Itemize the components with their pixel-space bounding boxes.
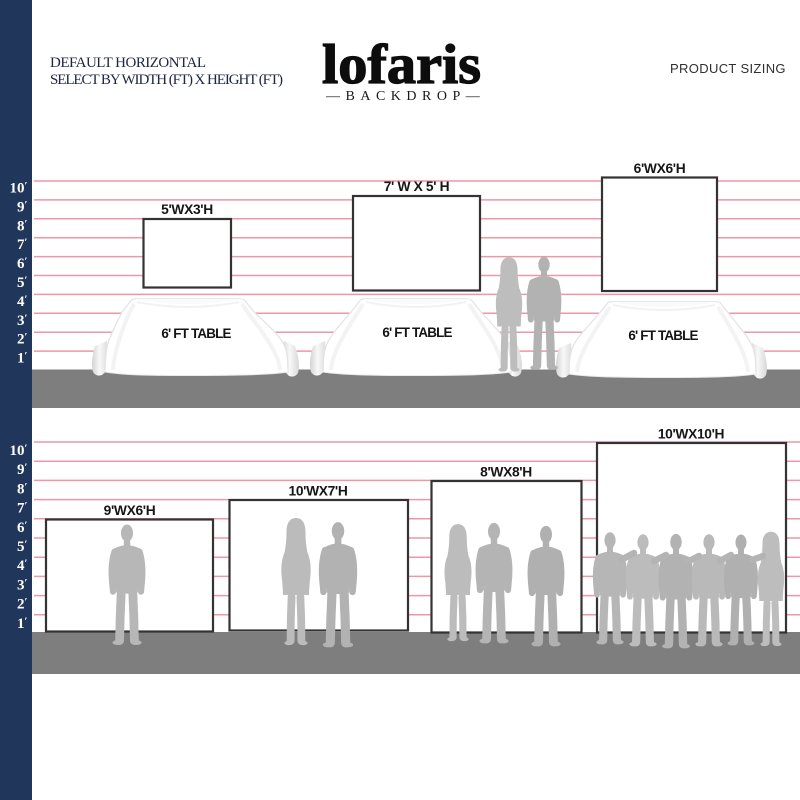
- svg-text:—BACKDROP—: —BACKDROP—: [325, 89, 485, 104]
- svg-text:9'WX6'H: 9'WX6'H: [104, 503, 156, 518]
- svg-text:PRODUCT SIZING: PRODUCT SIZING: [670, 61, 786, 76]
- svg-text:5'WX3'H: 5'WX3'H: [161, 202, 213, 217]
- svg-text:DEFAULT HORIZONTAL: DEFAULT HORIZONTAL: [50, 55, 206, 71]
- svg-text:10'WX10'H: 10'WX10'H: [658, 427, 725, 442]
- svg-text:6' FT TABLE: 6' FT TABLE: [382, 325, 452, 340]
- svg-text:10'WX7'H: 10'WX7'H: [289, 484, 348, 499]
- svg-text:7' W X 5' H: 7' W X 5' H: [384, 179, 450, 194]
- svg-text:SELECT BY WIDTH (FT) X HEIGHT: SELECT BY WIDTH (FT) X HEIGHT (FT): [50, 72, 283, 88]
- svg-text:8'WX8'H: 8'WX8'H: [480, 465, 532, 480]
- svg-text:6' FT TABLE: 6' FT TABLE: [628, 328, 698, 343]
- svg-text:6' FT TABLE: 6' FT TABLE: [161, 326, 231, 341]
- svg-text:lofaris: lofaris: [322, 34, 481, 96]
- svg-text:6'WX6'H: 6'WX6'H: [634, 161, 686, 176]
